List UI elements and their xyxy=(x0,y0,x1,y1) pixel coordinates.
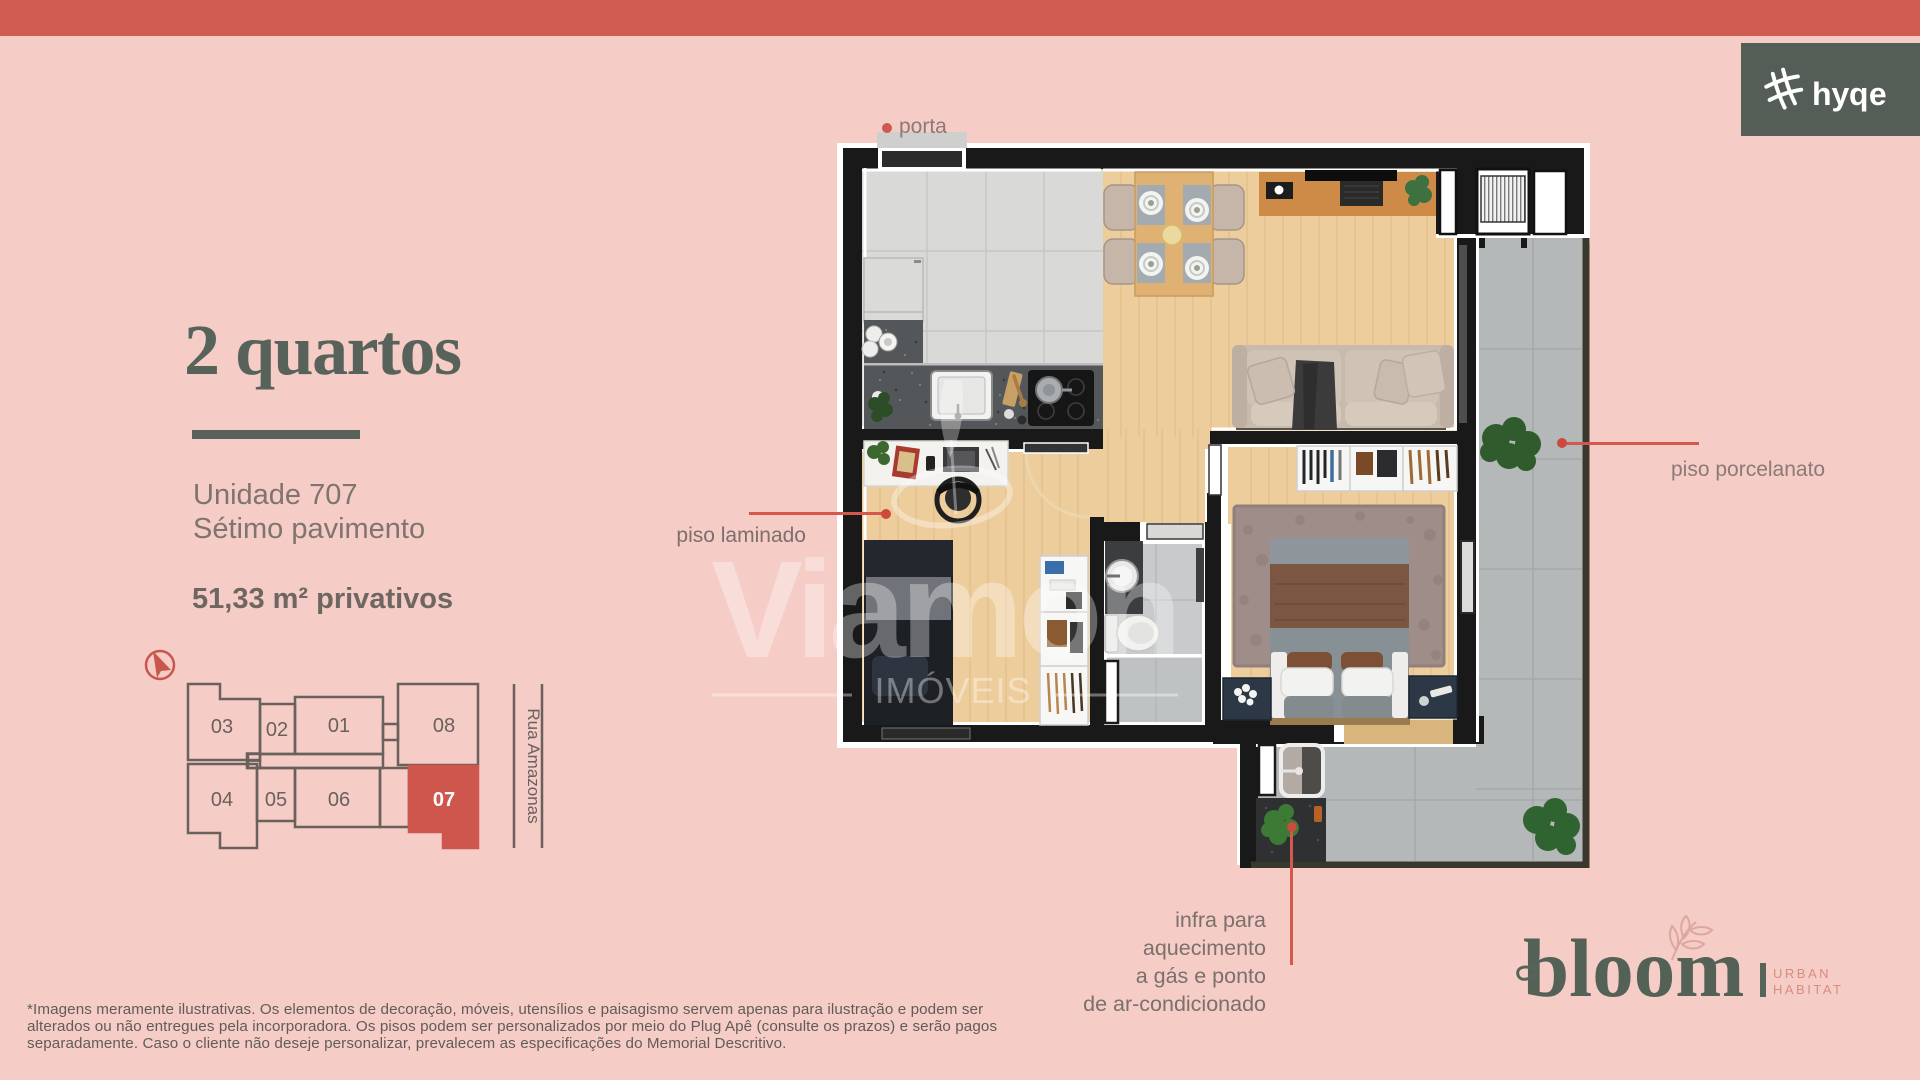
svg-text:04: 04 xyxy=(211,789,233,811)
svg-text:01: 01 xyxy=(328,715,350,737)
svg-text:Viamon: Viamon xyxy=(711,533,1177,687)
svg-text:IMÓVEIS: IMÓVEIS xyxy=(874,670,1031,711)
svg-text:06: 06 xyxy=(328,789,350,811)
svg-text:05: 05 xyxy=(265,789,287,811)
svg-text:08: 08 xyxy=(433,715,455,737)
svg-text:02: 02 xyxy=(266,719,288,741)
svg-text:07: 07 xyxy=(433,789,455,811)
svg-text:Rua Amazonas: Rua Amazonas xyxy=(524,708,543,823)
svg-text:03: 03 xyxy=(211,716,233,738)
